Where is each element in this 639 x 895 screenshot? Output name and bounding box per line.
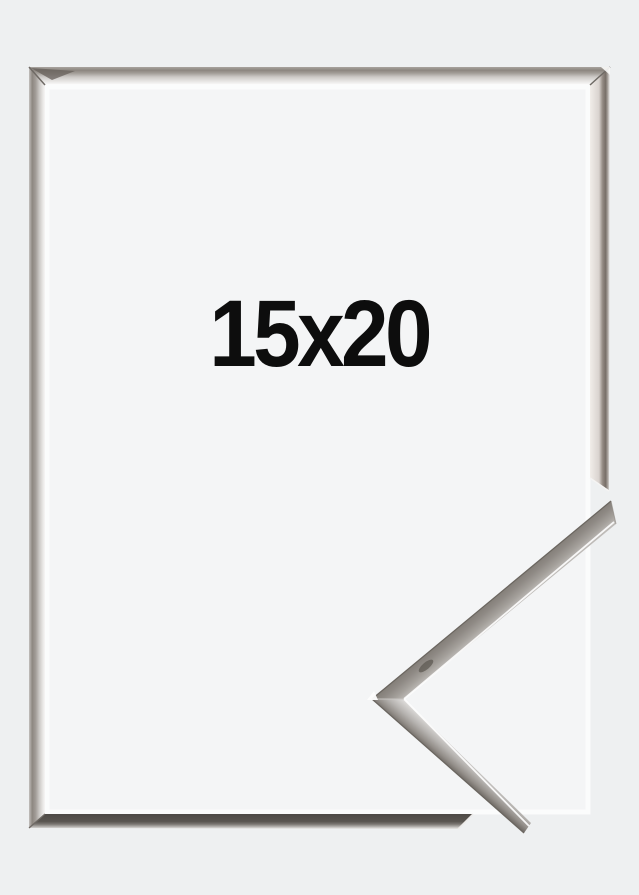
product-photo: 15x20 — [0, 0, 639, 895]
frame-bottom-rail — [29, 814, 473, 829]
frame-top-rail — [29, 67, 610, 85]
picture-frame-illustration — [0, 0, 639, 895]
frame-right-rail — [590, 67, 610, 491]
frame-backing — [45, 85, 590, 814]
frame-left-rail — [29, 67, 45, 828]
